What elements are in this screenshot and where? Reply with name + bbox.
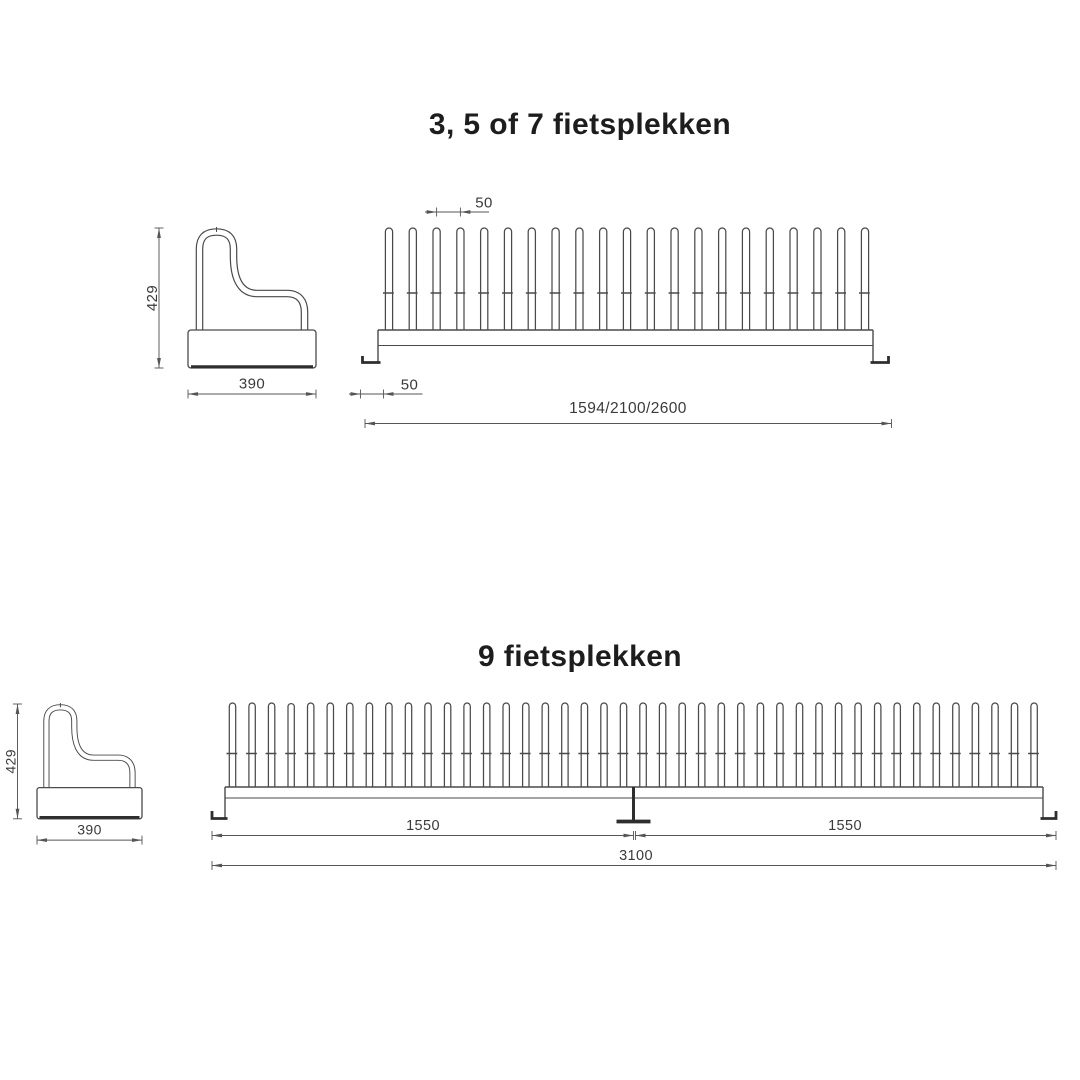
rack-hoop-profile — [46, 703, 132, 788]
diagram2-side-view: 429390 — [3, 703, 143, 845]
center-support-post — [617, 787, 651, 822]
end-offset-dim-label: 50 — [401, 377, 419, 394]
base-block — [188, 330, 316, 368]
rack-hoop-profile — [200, 227, 305, 330]
tines — [383, 228, 870, 330]
diagram2-front-view — [212, 703, 1056, 822]
base-block — [37, 788, 142, 819]
width-dim-label: 390 — [239, 376, 265, 393]
technical-drawing-svg: 42939050501594/2100/26004293901550155031… — [0, 0, 1080, 1080]
length-dim-label: 1594/2100/2600 — [569, 400, 687, 417]
height-dim-label: 429 — [144, 285, 161, 311]
segment-right-dim-label: 1550 — [828, 818, 862, 834]
total-length-dim-label: 3100 — [619, 848, 653, 864]
tines — [227, 703, 1039, 787]
diagram2: 429390155015503100 — [3, 703, 1057, 870]
pitch-dim-label: 50 — [475, 195, 493, 212]
segment-left-dim-label: 1550 — [406, 818, 440, 834]
bike-rack-drawing-page: 3, 5 of 7 fietsplekken 9 fietsplekken 42… — [0, 0, 1080, 1080]
diagram1-front-view — [363, 228, 889, 364]
diagram2-front-dimensions: 155015503100 — [212, 818, 1056, 870]
diagram1-front-dimensions: 50501594/2100/2600 — [349, 195, 892, 429]
width-dim-label: 390 — [77, 822, 102, 838]
diagram1: 42939050501594/2100/2600 — [144, 195, 892, 429]
height-dim-label: 429 — [3, 749, 19, 774]
diagram1-side-view: 429390 — [144, 227, 316, 399]
mounting-feet — [363, 356, 889, 363]
base-rail — [378, 330, 873, 364]
